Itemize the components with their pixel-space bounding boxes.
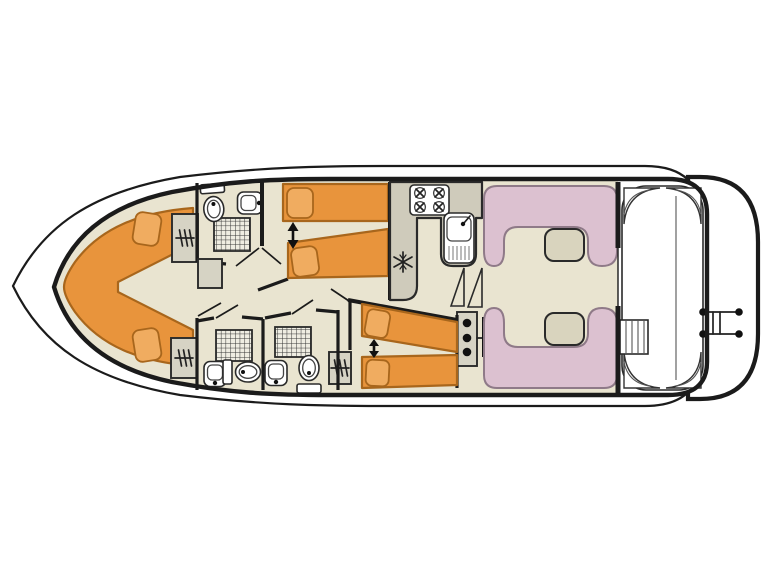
washbasin-icon (265, 361, 287, 386)
toilet-icon (297, 356, 321, 394)
deck-steps (620, 320, 648, 354)
burner-icon (415, 188, 426, 199)
ladder-post (735, 330, 743, 338)
pillow (132, 327, 163, 363)
shower (275, 327, 311, 357)
pillow (132, 211, 163, 247)
shower (216, 330, 252, 361)
galley-sink (444, 213, 474, 263)
floor-plan-svg (0, 0, 768, 576)
burner-icon (434, 202, 445, 213)
burner-icon (434, 188, 445, 199)
boat-floor-plan (0, 0, 768, 576)
dinette-table (545, 229, 584, 261)
pillow (365, 359, 389, 386)
washbasin-icon (238, 192, 263, 214)
stove (410, 185, 449, 215)
pillow (290, 245, 320, 277)
bathroom-cabinet (198, 259, 222, 288)
burner-icon (415, 202, 426, 213)
aft-deck-cover (618, 181, 705, 393)
shower (214, 218, 250, 251)
dinette-table (545, 313, 584, 345)
pillow (287, 188, 313, 218)
pillow (364, 308, 391, 339)
toilet-icon (223, 360, 261, 384)
ladder-post (735, 308, 743, 316)
